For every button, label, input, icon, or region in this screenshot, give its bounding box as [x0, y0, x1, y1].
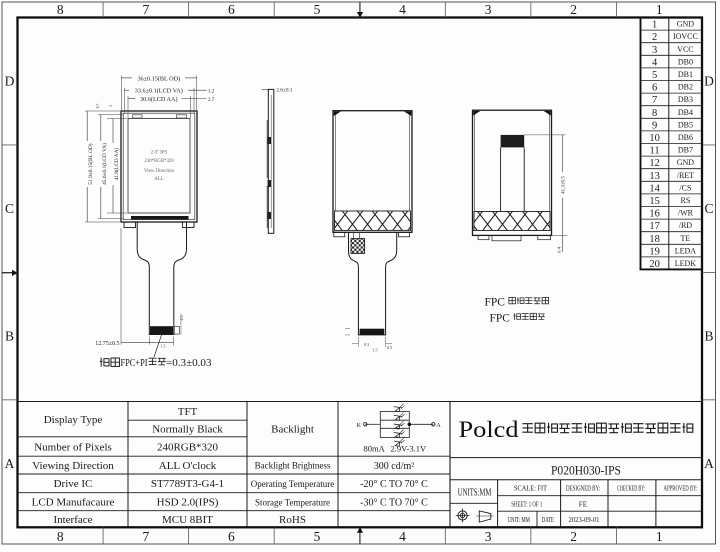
- svg-text:7: 7: [142, 529, 149, 544]
- svg-text:300 cd/m²: 300 cd/m²: [374, 461, 415, 472]
- svg-text:12.75±0.5: 12.75±0.5: [95, 341, 119, 347]
- svg-text:UNITS:MM: UNITS:MM: [458, 488, 492, 499]
- svg-text:2023-09-01: 2023-09-01: [569, 516, 600, 524]
- svg-text:Number of Pixels: Number of Pixels: [34, 441, 112, 453]
- svg-text:2: 2: [570, 2, 577, 17]
- svg-text:/RET: /RET: [677, 171, 694, 180]
- svg-text:DB3: DB3: [678, 95, 693, 104]
- svg-text:6: 6: [652, 83, 657, 94]
- svg-text:17: 17: [649, 221, 660, 232]
- svg-text:A: A: [436, 423, 441, 429]
- svg-text:14: 14: [649, 183, 660, 194]
- svg-text:240RGB*320: 240RGB*320: [157, 441, 219, 453]
- svg-text:LEDA: LEDA: [675, 246, 697, 255]
- svg-text:3: 3: [485, 2, 492, 17]
- svg-text:9: 9: [652, 120, 657, 131]
- svg-text:4.5: 4.5: [179, 316, 184, 321]
- svg-text:-20° C TO 70° C: -20° C TO 70° C: [360, 479, 428, 490]
- svg-text:19: 19: [649, 246, 660, 257]
- svg-text:D: D: [704, 74, 714, 89]
- svg-text:HSD 2.0(IPS): HSD 2.0(IPS): [157, 497, 219, 509]
- svg-text:6: 6: [228, 529, 235, 544]
- svg-text:41.8(LCD AA): 41.8(LCD AA): [113, 147, 120, 180]
- svg-text:Backlight Brightness: Backlight Brightness: [255, 461, 331, 471]
- svg-text:7: 7: [142, 2, 149, 17]
- svg-text:6.4: 6.4: [557, 246, 562, 252]
- svg-text:P020H030-IPS: P020H030-IPS: [551, 462, 621, 477]
- svg-text:Viewing Direction: Viewing Direction: [32, 460, 114, 472]
- svg-text:2.9V-3.1V: 2.9V-3.1V: [391, 444, 427, 454]
- svg-text:2.7: 2.7: [208, 98, 215, 103]
- svg-text:4: 4: [652, 57, 658, 68]
- svg-text:SCALE: FIT: SCALE: FIT: [514, 485, 548, 493]
- svg-text:51.9±0.15(BL OD): 51.9±0.15(BL OD): [87, 143, 94, 184]
- svg-text:FPC+PI: FPC+PI: [121, 358, 148, 369]
- svg-text:C: C: [704, 201, 713, 216]
- svg-text:1.5: 1.5: [373, 348, 378, 353]
- svg-text:GND: GND: [677, 20, 695, 29]
- svg-text:DB7: DB7: [678, 146, 693, 155]
- svg-text:TE: TE: [681, 234, 691, 243]
- svg-text:15: 15: [649, 196, 660, 207]
- svg-text:ALL: ALL: [154, 177, 164, 182]
- svg-text:DB6: DB6: [678, 133, 693, 142]
- svg-text:Storage Temperature: Storage Temperature: [255, 498, 330, 508]
- svg-text:3: 3: [109, 105, 113, 107]
- svg-text:TFT: TFT: [178, 406, 198, 418]
- svg-text:Interface: Interface: [53, 514, 92, 526]
- svg-text:Backlight: Backlight: [271, 424, 314, 436]
- svg-text:1: 1: [652, 20, 657, 31]
- svg-text:Polcd: Polcd: [459, 417, 520, 442]
- svg-text:RS: RS: [681, 196, 691, 205]
- svg-text:Display Type: Display Type: [44, 414, 103, 426]
- svg-text:DB0: DB0: [678, 57, 693, 66]
- svg-text:6: 6: [228, 2, 235, 17]
- svg-text:2: 2: [570, 529, 577, 544]
- svg-text:DB2: DB2: [678, 83, 693, 92]
- svg-text:240*RGB*320: 240*RGB*320: [144, 159, 174, 164]
- svg-text:30.6(LCD AA): 30.6(LCD AA): [140, 96, 177, 103]
- svg-text:1: 1: [656, 2, 663, 17]
- svg-text:A: A: [704, 456, 714, 471]
- svg-text:0.5: 0.5: [387, 345, 392, 350]
- svg-text:41.3±0.5: 41.3±0.5: [562, 176, 567, 194]
- svg-text:36±0.15(BL OD): 36±0.15(BL OD): [137, 75, 180, 82]
- svg-text:A: A: [5, 456, 15, 471]
- svg-text:Operating Temperature: Operating Temperature: [251, 479, 334, 489]
- svg-text:ALL O'clock: ALL O'clock: [159, 460, 217, 472]
- svg-text:APPROVED BY:: APPROVED BY:: [664, 485, 698, 493]
- svg-text:LEDK: LEDK: [675, 259, 697, 268]
- svg-text:D: D: [5, 74, 15, 89]
- svg-text:RoHS: RoHS: [279, 514, 306, 526]
- svg-text:FPC: FPC: [485, 296, 506, 308]
- svg-text:/RD: /RD: [679, 221, 693, 230]
- svg-text:DESIGNED BY:: DESIGNED BY:: [566, 485, 600, 493]
- svg-text:33.6±0.1(LCD VA): 33.6±0.1(LCD VA): [135, 88, 183, 95]
- svg-text:5: 5: [314, 2, 321, 17]
- svg-text:18: 18: [649, 234, 660, 245]
- svg-text:Normally Black: Normally Black: [152, 423, 223, 435]
- svg-text:11: 11: [650, 146, 660, 157]
- svg-text:8: 8: [57, 529, 64, 544]
- svg-text:80mA: 80mA: [364, 444, 386, 454]
- svg-text:Drive IC: Drive IC: [54, 478, 93, 490]
- svg-text:DB5: DB5: [678, 120, 693, 129]
- svg-text:7: 7: [652, 95, 657, 106]
- svg-text:K: K: [357, 423, 362, 429]
- svg-text:B: B: [704, 329, 713, 344]
- svg-text:5: 5: [314, 529, 321, 544]
- svg-text:C: C: [5, 201, 14, 216]
- svg-text:0.7: 0.7: [96, 104, 100, 109]
- svg-text:1: 1: [656, 529, 663, 544]
- svg-text:/CS: /CS: [679, 183, 691, 192]
- svg-text:2.0" IPS: 2.0" IPS: [151, 150, 168, 155]
- svg-text:UNIT: MM: UNIT: MM: [508, 516, 531, 524]
- svg-text:45.6±0.1(LCD VA): 45.6±0.1(LCD VA): [101, 143, 108, 185]
- svg-text:MCU 8BIT: MCU 8BIT: [162, 514, 213, 526]
- svg-text:0.3: 0.3: [364, 342, 369, 347]
- svg-text:3: 3: [652, 45, 657, 56]
- svg-text:13: 13: [649, 171, 660, 182]
- svg-text:10: 10: [649, 133, 660, 144]
- svg-text:DB4: DB4: [678, 108, 693, 117]
- svg-text:8: 8: [652, 108, 657, 119]
- svg-text:2: 2: [652, 32, 657, 43]
- svg-text:/WR: /WR: [678, 209, 694, 218]
- svg-text:12: 12: [649, 158, 660, 169]
- svg-text:ST7789T3-G4-1: ST7789T3-G4-1: [151, 478, 224, 490]
- svg-text:-30° C TO 70° C: -30° C TO 70° C: [360, 498, 428, 509]
- svg-text:LCD Manufacaure: LCD Manufacaure: [32, 497, 115, 509]
- svg-text:FE: FE: [579, 500, 588, 508]
- svg-text:IOVCC: IOVCC: [673, 32, 698, 41]
- svg-text:16: 16: [649, 209, 660, 220]
- svg-text:1.2: 1.2: [208, 90, 215, 95]
- svg-text:GND: GND: [677, 158, 695, 167]
- svg-text:5: 5: [652, 70, 657, 81]
- svg-text:View Direction: View Direction: [144, 169, 175, 174]
- svg-text:FPC: FPC: [490, 312, 511, 324]
- svg-text:3: 3: [485, 529, 492, 544]
- svg-text:DATE: DATE: [542, 516, 554, 524]
- svg-text:20: 20: [649, 259, 660, 270]
- svg-text:VCC: VCC: [677, 45, 693, 54]
- svg-text:DB1: DB1: [678, 70, 693, 79]
- svg-text:4: 4: [399, 2, 406, 17]
- svg-text:SHEET: 1 OF 1: SHEET: 1 OF 1: [511, 500, 542, 508]
- svg-text:=0.3±0.03: =0.3±0.03: [166, 357, 212, 369]
- svg-text:8: 8: [57, 2, 64, 17]
- svg-text:2.6±0.1: 2.6±0.1: [276, 88, 293, 94]
- svg-text:4: 4: [399, 529, 406, 544]
- svg-text:1.5: 1.5: [161, 344, 166, 349]
- svg-text:CHECKED BY:: CHECKED BY:: [617, 485, 645, 493]
- svg-text:B: B: [5, 329, 14, 344]
